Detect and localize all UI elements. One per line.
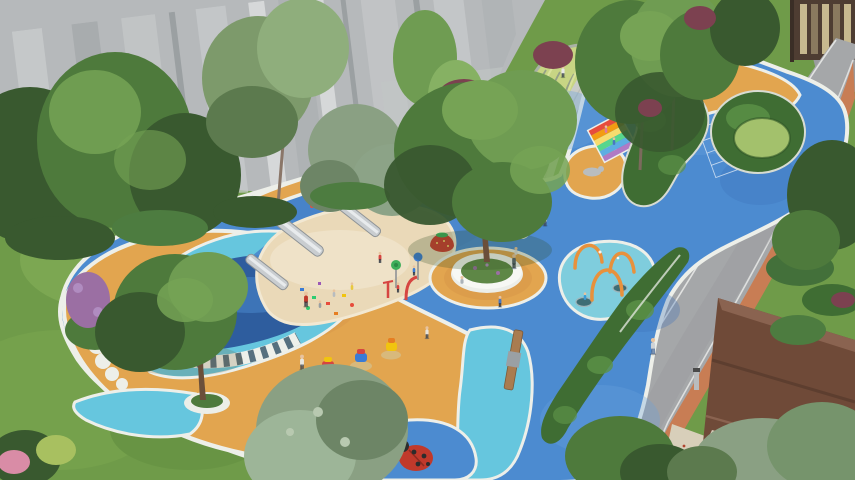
person-seated (460, 276, 463, 284)
person (605, 125, 608, 133)
person (333, 289, 336, 297)
person (613, 137, 616, 145)
playground-rendering (0, 0, 855, 480)
rendering-canvas (0, 0, 855, 480)
bollard-light (694, 370, 699, 390)
person (584, 292, 587, 300)
person (319, 300, 322, 308)
person (351, 282, 354, 290)
